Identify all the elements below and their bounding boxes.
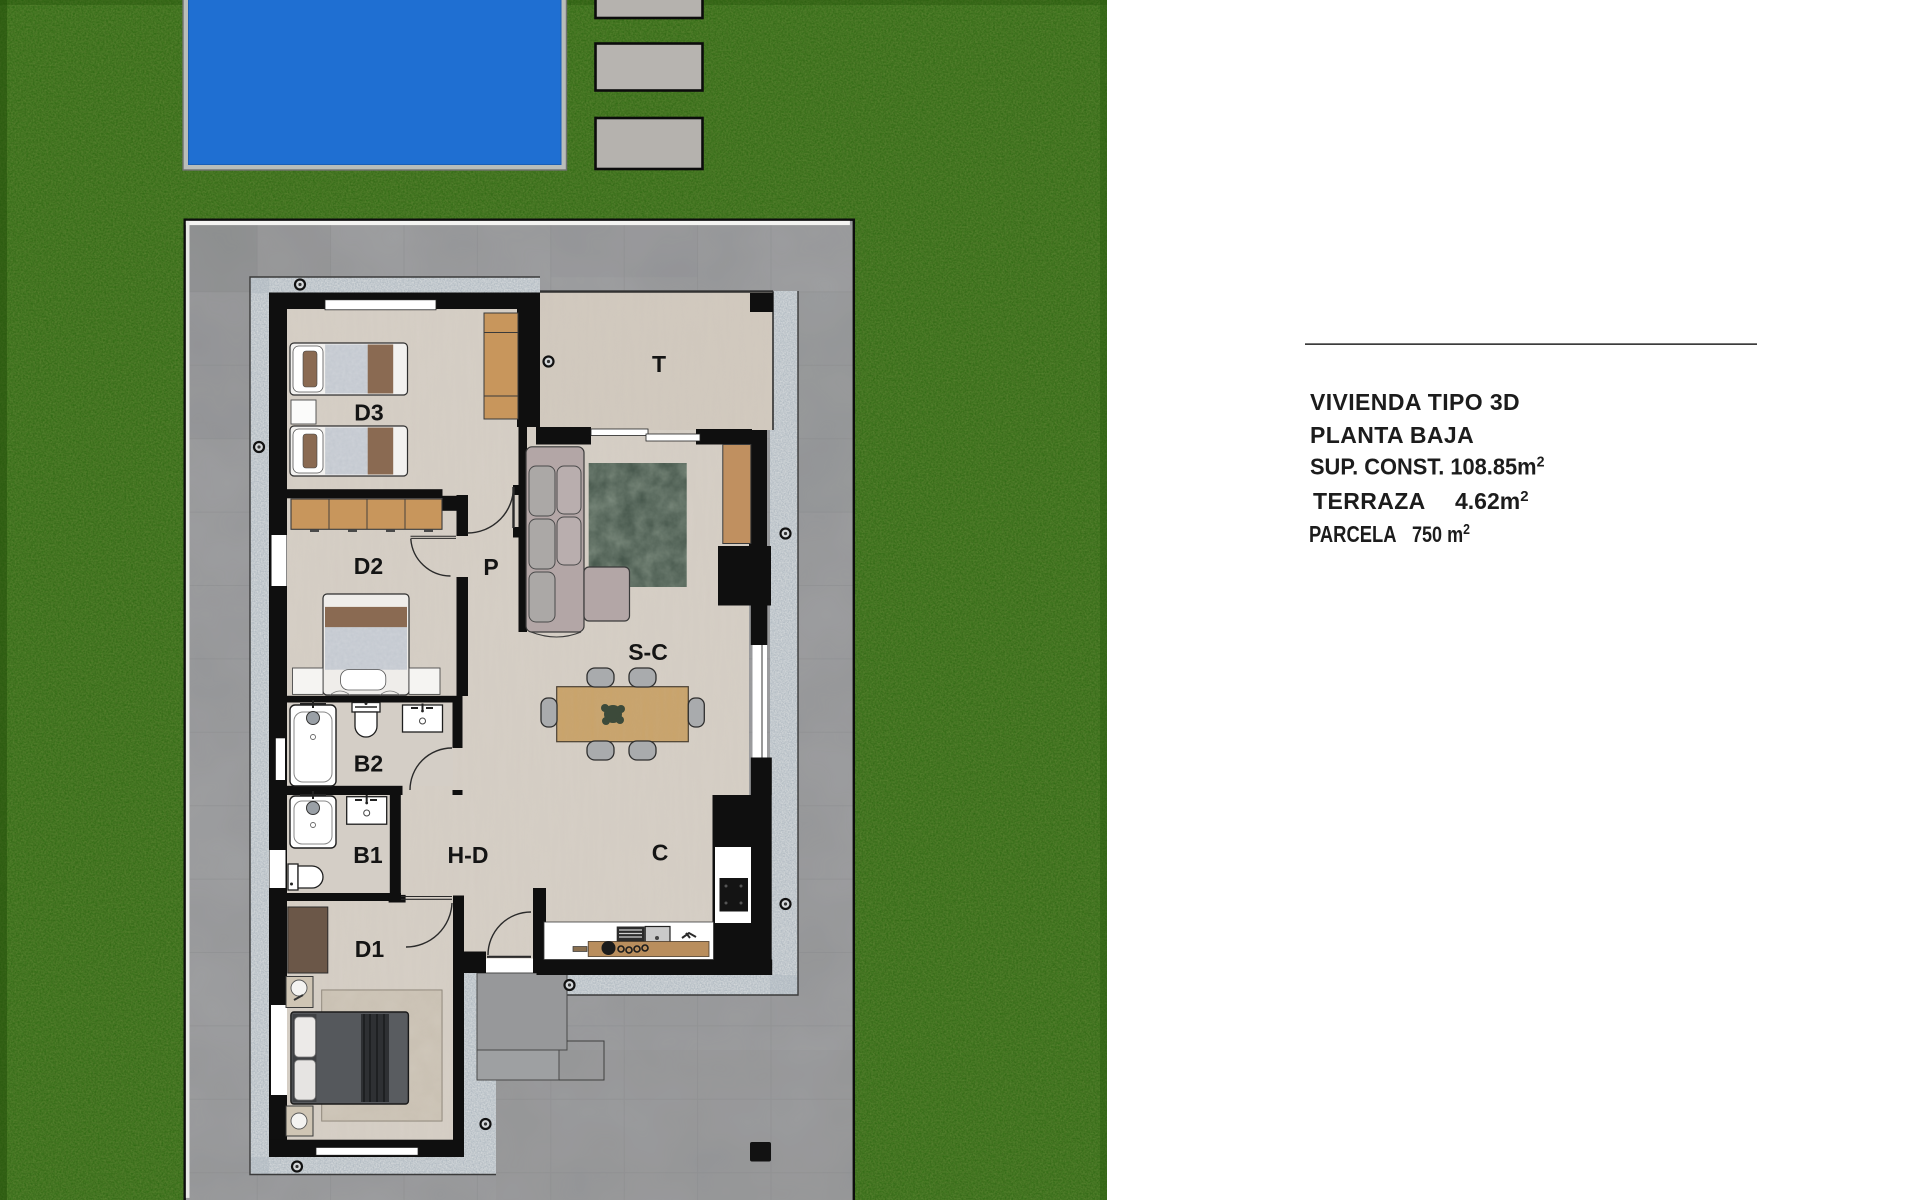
svg-text:C: C (652, 840, 669, 866)
svg-text:B1: B1 (353, 842, 383, 868)
svg-text:VIVIENDA TIPO 3D: VIVIENDA TIPO 3D (1310, 389, 1520, 415)
svg-text:D2: D2 (354, 553, 383, 579)
svg-text:SUP. CONST. 108.85m2: SUP. CONST. 108.85m2 (1310, 454, 1545, 480)
svg-text:D1: D1 (355, 936, 385, 962)
svg-text:S-C: S-C (628, 639, 668, 665)
svg-text:P: P (483, 554, 498, 580)
svg-text:PARCELA: PARCELA (1309, 522, 1397, 547)
svg-text:4.62m2: 4.62m2 (1455, 488, 1529, 514)
svg-text:PLANTA BAJA: PLANTA BAJA (1310, 422, 1474, 448)
svg-text:T: T (652, 351, 666, 377)
svg-text:750 m2: 750 m2 (1412, 521, 1470, 548)
svg-text:H-D: H-D (448, 842, 489, 868)
svg-text:TERRAZA: TERRAZA (1313, 488, 1426, 514)
svg-text:D3: D3 (354, 400, 383, 426)
svg-text:B2: B2 (354, 751, 383, 777)
